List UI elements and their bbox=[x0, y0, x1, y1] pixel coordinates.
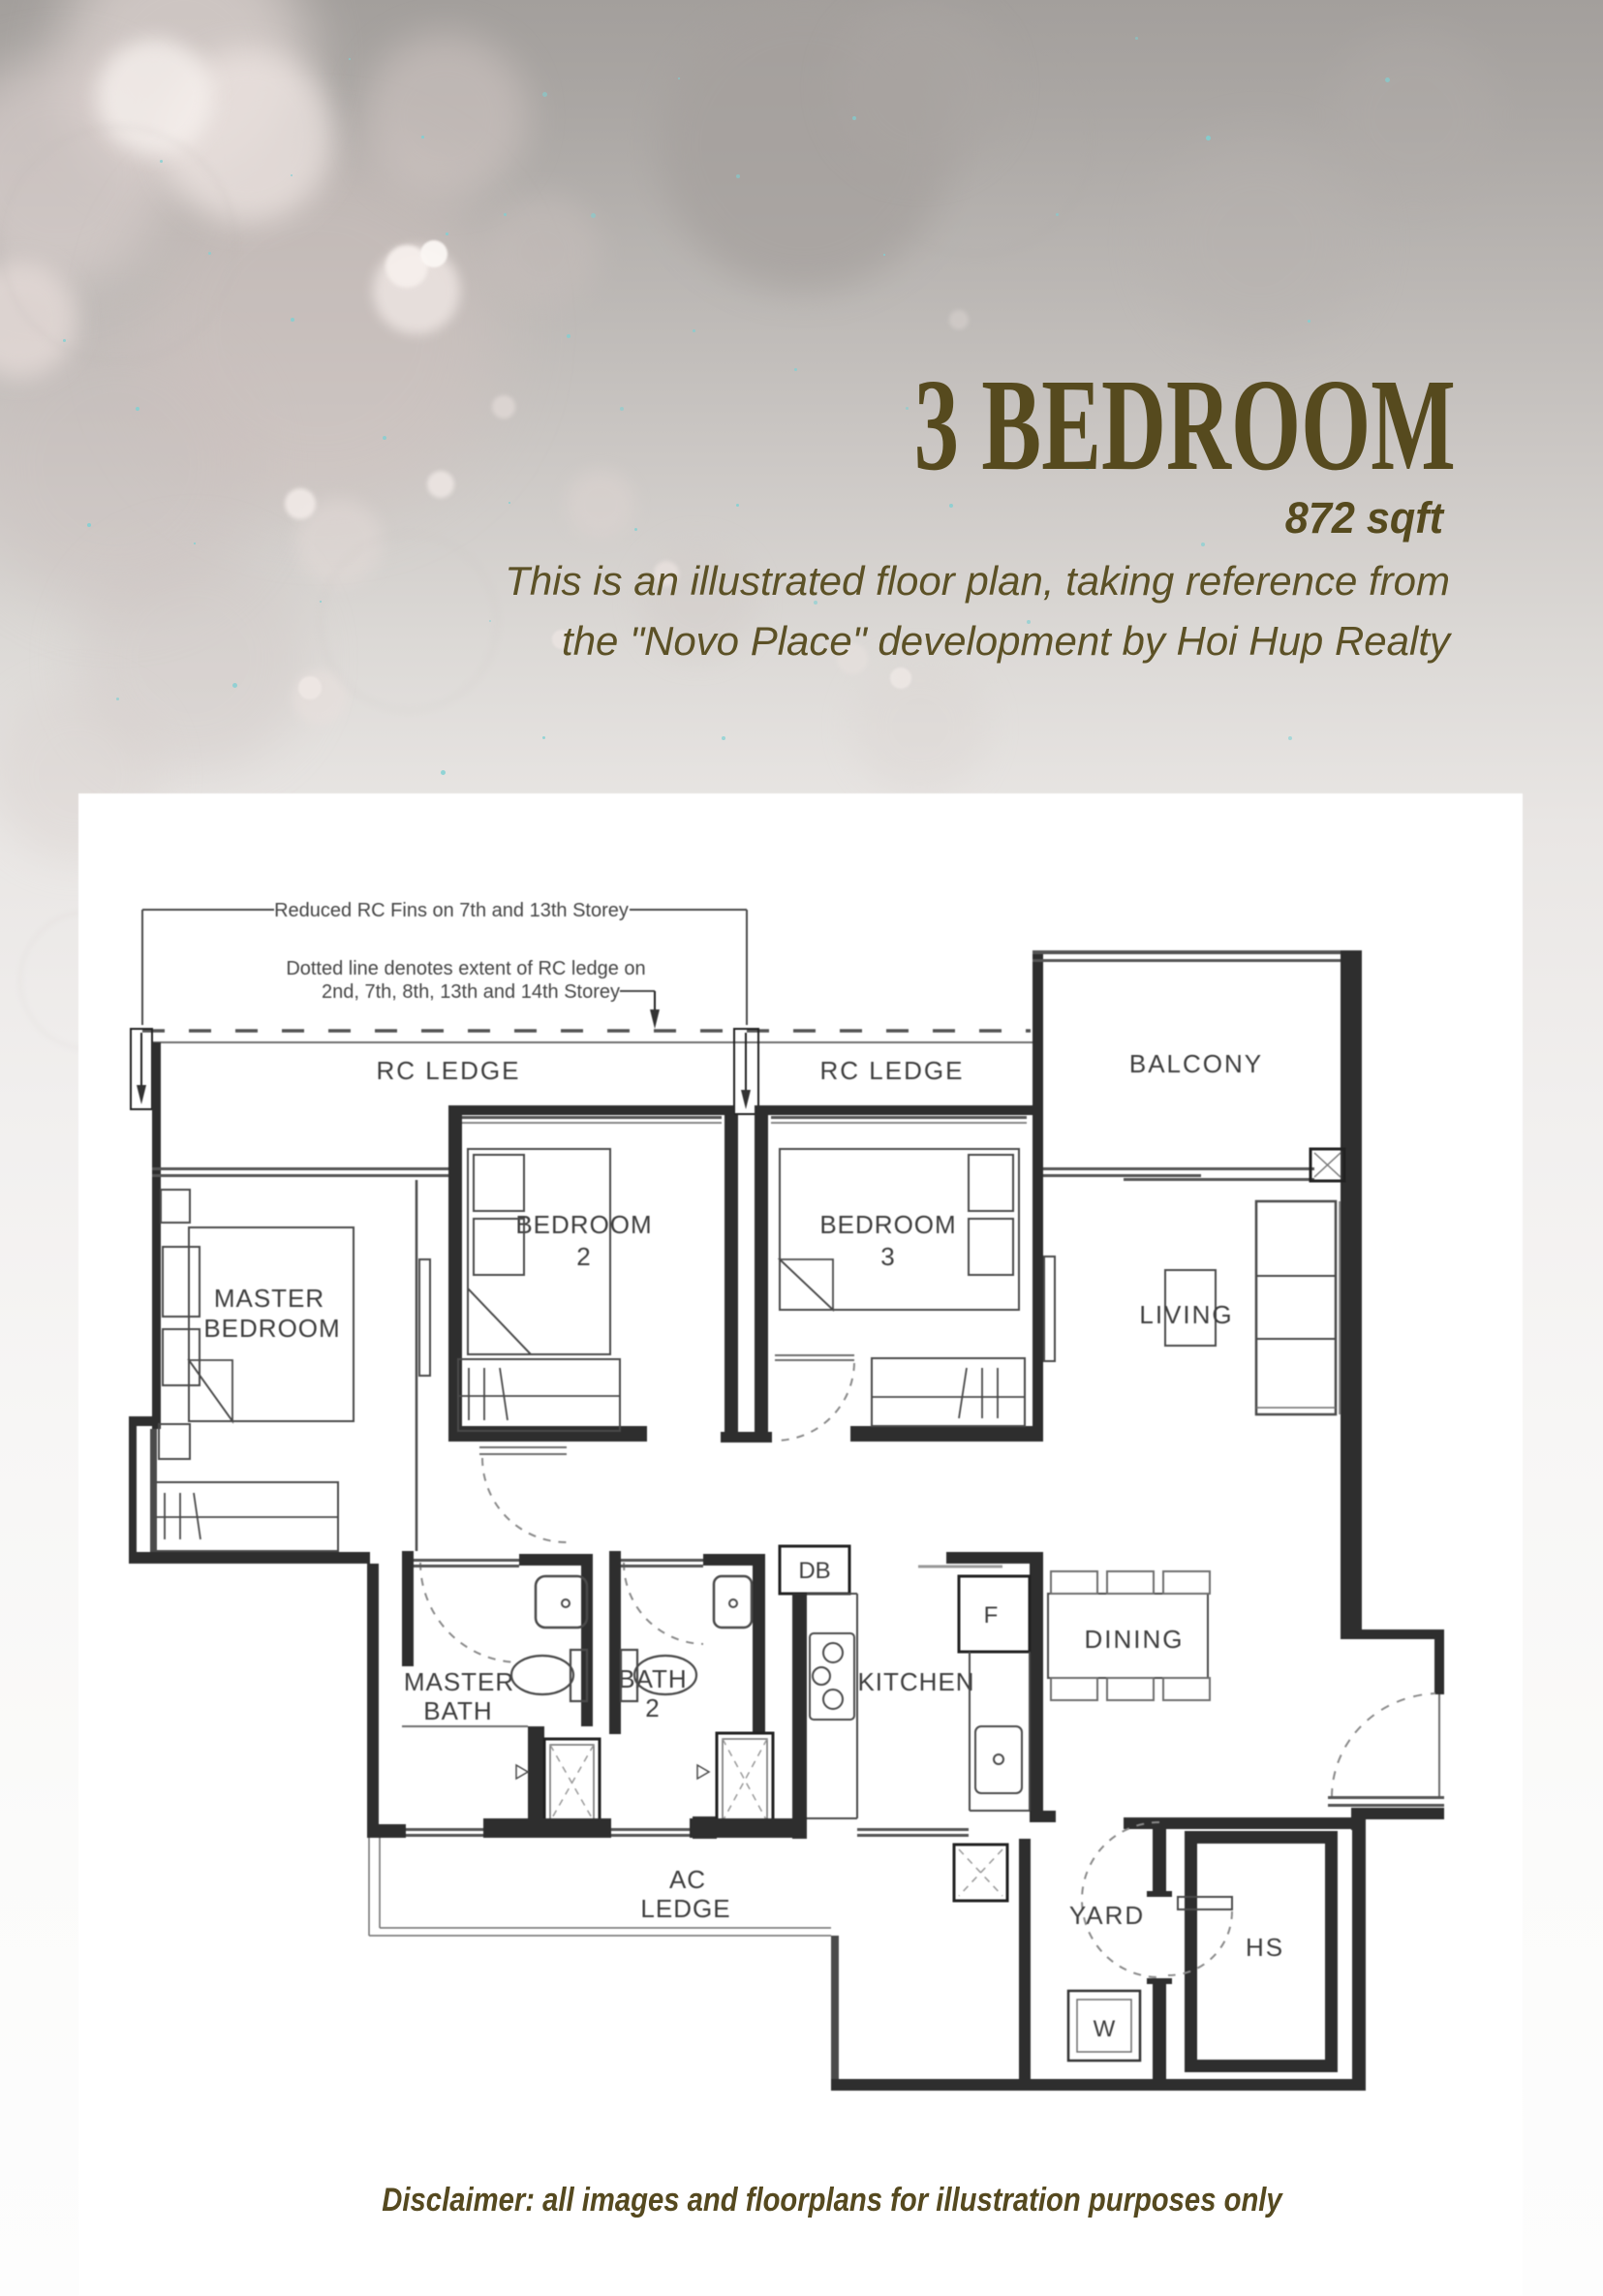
svg-text:YARD: YARD bbox=[1069, 1901, 1145, 1930]
svg-text:RC LEDGE: RC LEDGE bbox=[820, 1056, 965, 1085]
svg-text:F: F bbox=[984, 1602, 999, 1629]
svg-text:RC LEDGE: RC LEDGE bbox=[377, 1056, 521, 1085]
svg-text:LEDGE: LEDGE bbox=[640, 1894, 730, 1923]
svg-text:2nd, 7th, 8th, 13th and 14th S: 2nd, 7th, 8th, 13th and 14th Storey bbox=[322, 981, 620, 1003]
svg-text:MASTER: MASTER bbox=[404, 1667, 514, 1696]
svg-text:BEDROOM: BEDROOM bbox=[515, 1210, 652, 1239]
svg-text:DB: DB bbox=[798, 1558, 830, 1584]
svg-text:BATH: BATH bbox=[618, 1664, 687, 1693]
svg-text:BALCONY: BALCONY bbox=[1129, 1049, 1263, 1078]
svg-text:DINING: DINING bbox=[1085, 1625, 1185, 1654]
svg-text:BEDROOM: BEDROOM bbox=[203, 1314, 340, 1343]
svg-text:3: 3 bbox=[880, 1242, 895, 1271]
svg-text:LIVING: LIVING bbox=[1139, 1300, 1233, 1329]
svg-text:MASTER: MASTER bbox=[214, 1284, 324, 1313]
svg-text:2: 2 bbox=[645, 1693, 660, 1722]
svg-text:W: W bbox=[1094, 2016, 1116, 2042]
svg-text:HS: HS bbox=[1246, 1933, 1284, 1962]
svg-text:2: 2 bbox=[576, 1242, 591, 1271]
svg-text:BATH: BATH bbox=[423, 1696, 492, 1725]
svg-text:Reduced RC Fins on 7th and 13t: Reduced RC Fins on 7th and 13th Storey bbox=[274, 900, 629, 921]
svg-text:KITCHEN: KITCHEN bbox=[857, 1667, 974, 1696]
svg-text:Dotted line denotes extent of: Dotted line denotes extent of RC ledge o… bbox=[286, 958, 645, 979]
svg-text:BEDROOM: BEDROOM bbox=[819, 1210, 956, 1239]
svg-text:AC: AC bbox=[669, 1865, 706, 1894]
